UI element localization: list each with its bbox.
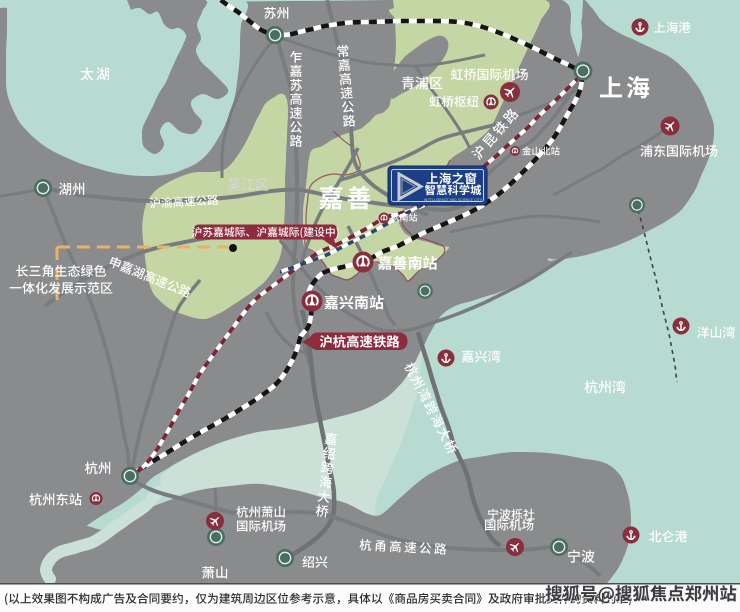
svg-text:INTELLIGENCE AND SCIENCE CITY: INTELLIGENCE AND SCIENCE CITY [424,198,483,202]
